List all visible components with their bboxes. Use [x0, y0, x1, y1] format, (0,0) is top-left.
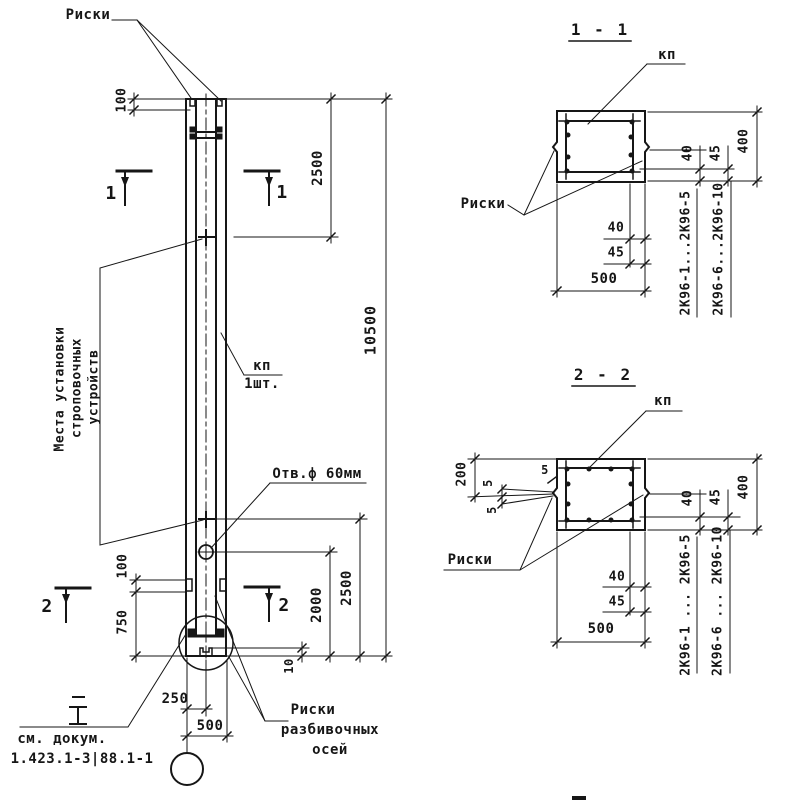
top-riska-notch-left: [190, 99, 195, 106]
column-elevation: [179, 94, 233, 716]
s2-series-a: 2К96-1 ... 2К96-5: [680, 534, 693, 676]
cut-1-left-digit: 1: [105, 185, 116, 203]
s2-series-b: 2К96-6 ... 2К96-10: [712, 526, 725, 676]
dim-10: 10: [283, 658, 295, 673]
section-2-rebar-dots: [565, 467, 635, 523]
s1-series-b: 2К96-6...2К96-10: [713, 182, 726, 315]
strop-mark-lower: [199, 512, 214, 527]
axes-riski-line1: Риски: [291, 703, 336, 717]
s2-dim-500: 500: [588, 622, 615, 636]
s2-dim-45-right: 45: [710, 489, 723, 506]
strop-mark-upper: [199, 230, 214, 245]
section-2-kp-label: кп: [654, 394, 672, 408]
kp-qty-label: 1шт.: [244, 377, 280, 391]
section-1-title: 1 - 1: [571, 22, 629, 38]
dim-500-elevation: 500: [197, 719, 224, 733]
riski-top-label: Риски: [66, 8, 111, 22]
s2-dim-200: 200: [456, 462, 469, 487]
dim-lower-2500: 2500: [340, 570, 354, 606]
cut-2-left-digit: 2: [41, 598, 52, 616]
s1-series-a: 2К96-1...2К96-5: [680, 191, 693, 316]
section-1-riski-label: Риски: [461, 197, 506, 211]
drawing-linework: [0, 0, 800, 800]
s2-dim-5c: 5: [541, 464, 549, 476]
s2-dim-40-right: 40: [682, 490, 695, 507]
cut-1-right-digit: 1: [276, 184, 287, 202]
s2-dim-5b: 5: [486, 506, 498, 514]
dim-base-100: 100: [117, 554, 130, 579]
strop-places-line1: Места установки: [54, 327, 67, 452]
s1-dim-500: 500: [591, 272, 618, 286]
dim-total-10500: 10500: [364, 305, 379, 355]
s1-dim-40-right: 40: [682, 145, 695, 162]
hole-label: Отв.ф 60мм: [272, 467, 361, 481]
doc-note-line2: 1.423.1-3|88.1-1: [11, 752, 154, 766]
dim-top-100: 100: [116, 88, 129, 113]
hole-60mm: [198, 544, 214, 560]
s2-dim-40-bottom: 40: [609, 571, 626, 584]
kp-label-elevation: кп: [253, 359, 271, 373]
s2-dim-400: 400: [738, 475, 751, 500]
s2-dim-5a: 5: [482, 479, 494, 487]
s1-dim-400: 400: [738, 129, 751, 154]
dim-250: 250: [162, 692, 189, 706]
section-2-stirrup: [566, 468, 633, 521]
elevation-dimensions: [128, 93, 392, 785]
axis-bubble: [171, 753, 203, 785]
strop-places-line3: устройств: [88, 350, 101, 425]
s1-dim-40-bottom: 40: [608, 222, 625, 235]
axes-riski-line2: разбивочных: [281, 723, 379, 737]
section-1-rebar-dots: [565, 120, 635, 174]
doc-note-line1: см. докум.: [17, 732, 106, 746]
section-2-title: 2 - 2: [574, 367, 632, 383]
cut-2-right-digit: 2: [278, 597, 289, 615]
section-2-corner-marks: [559, 461, 640, 528]
dim-750: 750: [117, 610, 130, 635]
drawing-sheet: Риски Места установки строповочных устро…: [0, 0, 800, 800]
section-2-riski-label: Риски: [448, 553, 493, 567]
strop-places-line2: строповочных: [71, 338, 84, 438]
s1-dim-45-right: 45: [710, 145, 723, 162]
detail-mark-symbol: [70, 697, 86, 724]
dim-2000: 2000: [310, 587, 324, 623]
dim-upper-2500: 2500: [311, 150, 325, 186]
section-1-stirrup: [566, 121, 633, 172]
section-1-corner-marks: [559, 114, 640, 179]
edge-artifact: [572, 796, 586, 800]
section-1-kp-label: кп: [658, 48, 676, 62]
s2-dim-45-bottom: 45: [609, 596, 626, 609]
s1-dim-45-bottom: 45: [608, 247, 625, 260]
axes-riski-line3: осей: [312, 743, 348, 757]
